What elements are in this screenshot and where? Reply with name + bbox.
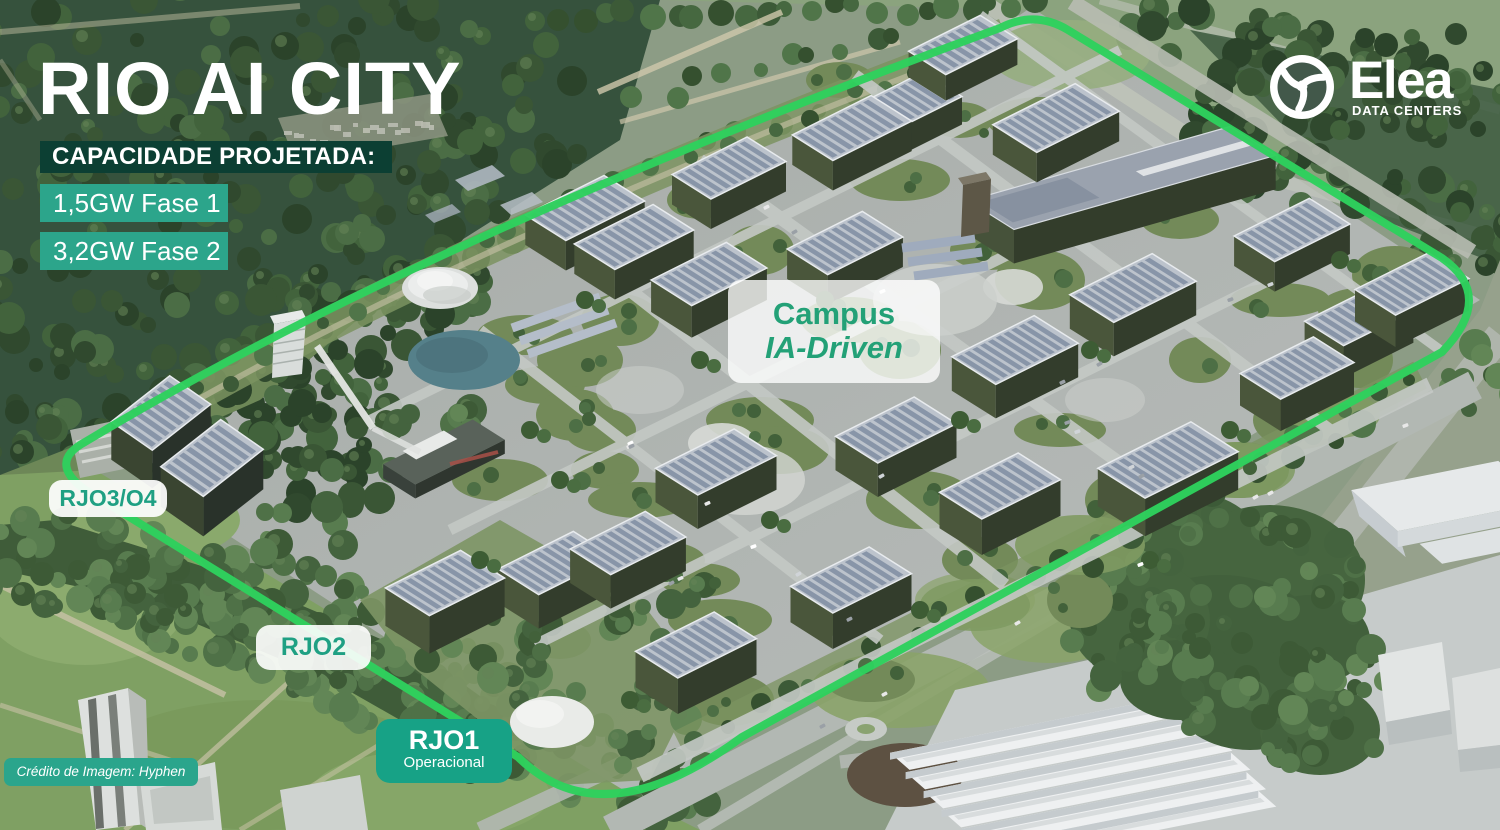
svg-text:Elea: Elea (1349, 51, 1454, 110)
svg-text:DATA CENTERS: DATA CENTERS (1352, 103, 1462, 118)
